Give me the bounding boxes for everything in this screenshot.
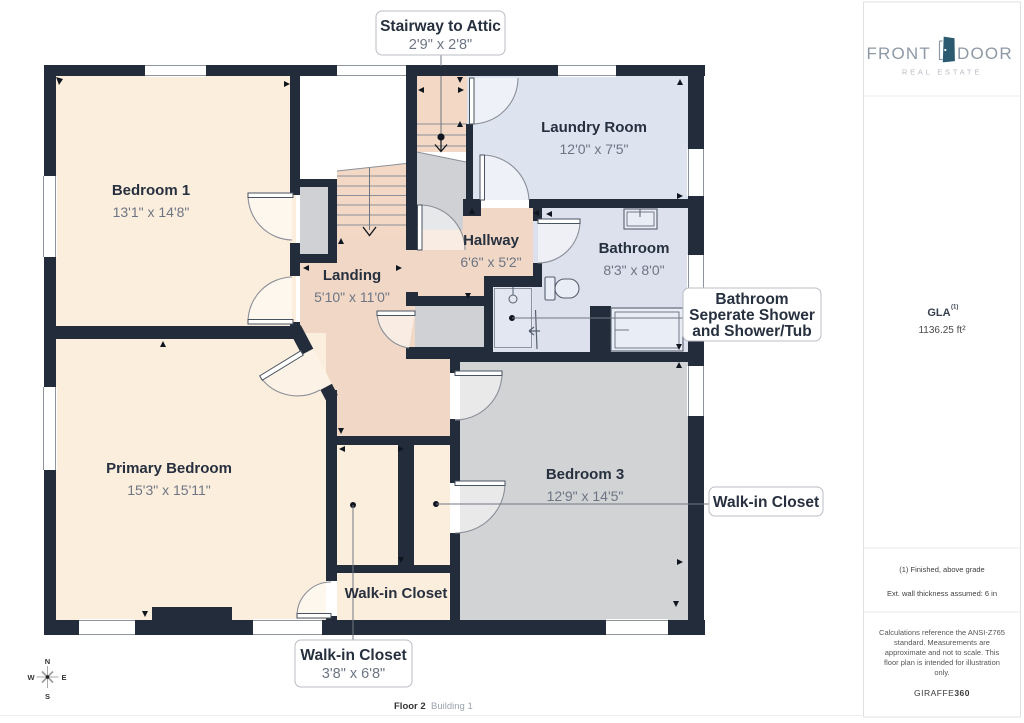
svg-text:only.: only. xyxy=(934,668,949,677)
svg-text:Bathroom: Bathroom xyxy=(715,291,788,308)
svg-text:(1): (1) xyxy=(951,305,958,311)
svg-text:Walk-in Closet: Walk-in Closet xyxy=(300,647,406,664)
svg-text:Bathroom: Bathroom xyxy=(599,240,670,257)
svg-text:Hallway: Hallway xyxy=(463,232,520,249)
svg-text:Seperate Shower: Seperate Shower xyxy=(689,307,815,324)
svg-text:GLA: GLA xyxy=(927,307,950,319)
svg-text:Bedroom 3: Bedroom 3 xyxy=(546,466,624,483)
svg-text:6'6" x 5'2": 6'6" x 5'2" xyxy=(460,254,521,270)
svg-text:Laundry Room: Laundry Room xyxy=(541,119,647,136)
svg-text:Landing: Landing xyxy=(323,267,381,284)
svg-text:S: S xyxy=(45,692,50,701)
svg-text:12'0" x 7'5": 12'0" x 7'5" xyxy=(560,141,629,157)
svg-text:E: E xyxy=(61,673,66,682)
svg-text:Building 1: Building 1 xyxy=(431,701,473,712)
svg-text:15'3" x 15'11": 15'3" x 15'11" xyxy=(127,482,211,498)
svg-text:2'9" x 2'8": 2'9" x 2'8" xyxy=(409,37,472,53)
svg-text:Calculations reference the ANS: Calculations reference the ANSI-Z765 xyxy=(879,628,1005,637)
svg-text:floor plan is intended for ill: floor plan is intended for illustration xyxy=(884,658,1000,667)
svg-text:Walk-in Closet: Walk-in Closet xyxy=(345,585,448,602)
svg-text:Primary Bedroom: Primary Bedroom xyxy=(106,460,232,477)
svg-text:5'10" x 11'0": 5'10" x 11'0" xyxy=(314,289,390,305)
svg-text:(1) Finished, above grade: (1) Finished, above grade xyxy=(899,565,984,574)
svg-text:N: N xyxy=(45,657,50,666)
svg-text:Stairway to Attic: Stairway to Attic xyxy=(380,18,501,35)
svg-text:GIRAFFE360: GIRAFFE360 xyxy=(914,688,970,698)
svg-text:3'8" x 6'8": 3'8" x 6'8" xyxy=(322,666,385,682)
svg-text:and Shower/Tub: and Shower/Tub xyxy=(692,323,811,340)
svg-text:FRONT: FRONT xyxy=(866,44,931,63)
svg-text:Bedroom 1: Bedroom 1 xyxy=(112,182,190,199)
svg-text:8'3" x 8'0": 8'3" x 8'0" xyxy=(603,262,664,278)
svg-text:W: W xyxy=(27,673,35,682)
svg-text:standard. Measurements are: standard. Measurements are xyxy=(894,638,990,647)
svg-text:1136.25 ft²: 1136.25 ft² xyxy=(918,325,966,336)
svg-text:12'9" x 14'5": 12'9" x 14'5" xyxy=(547,488,624,504)
svg-text:Floor 2: Floor 2 xyxy=(394,701,426,712)
svg-text:approximate and not to scale.: approximate and not to scale. This xyxy=(885,648,1000,657)
svg-text:13'1" x 14'8": 13'1" x 14'8" xyxy=(113,204,190,220)
svg-text:DOOR: DOOR xyxy=(957,44,1013,63)
svg-text:Ext. wall thickness assumed: 6: Ext. wall thickness assumed: 6 in xyxy=(887,589,997,598)
svg-text:REAL ESTATE: REAL ESTATE xyxy=(902,68,982,77)
svg-text:Walk-in Closet: Walk-in Closet xyxy=(713,494,819,511)
